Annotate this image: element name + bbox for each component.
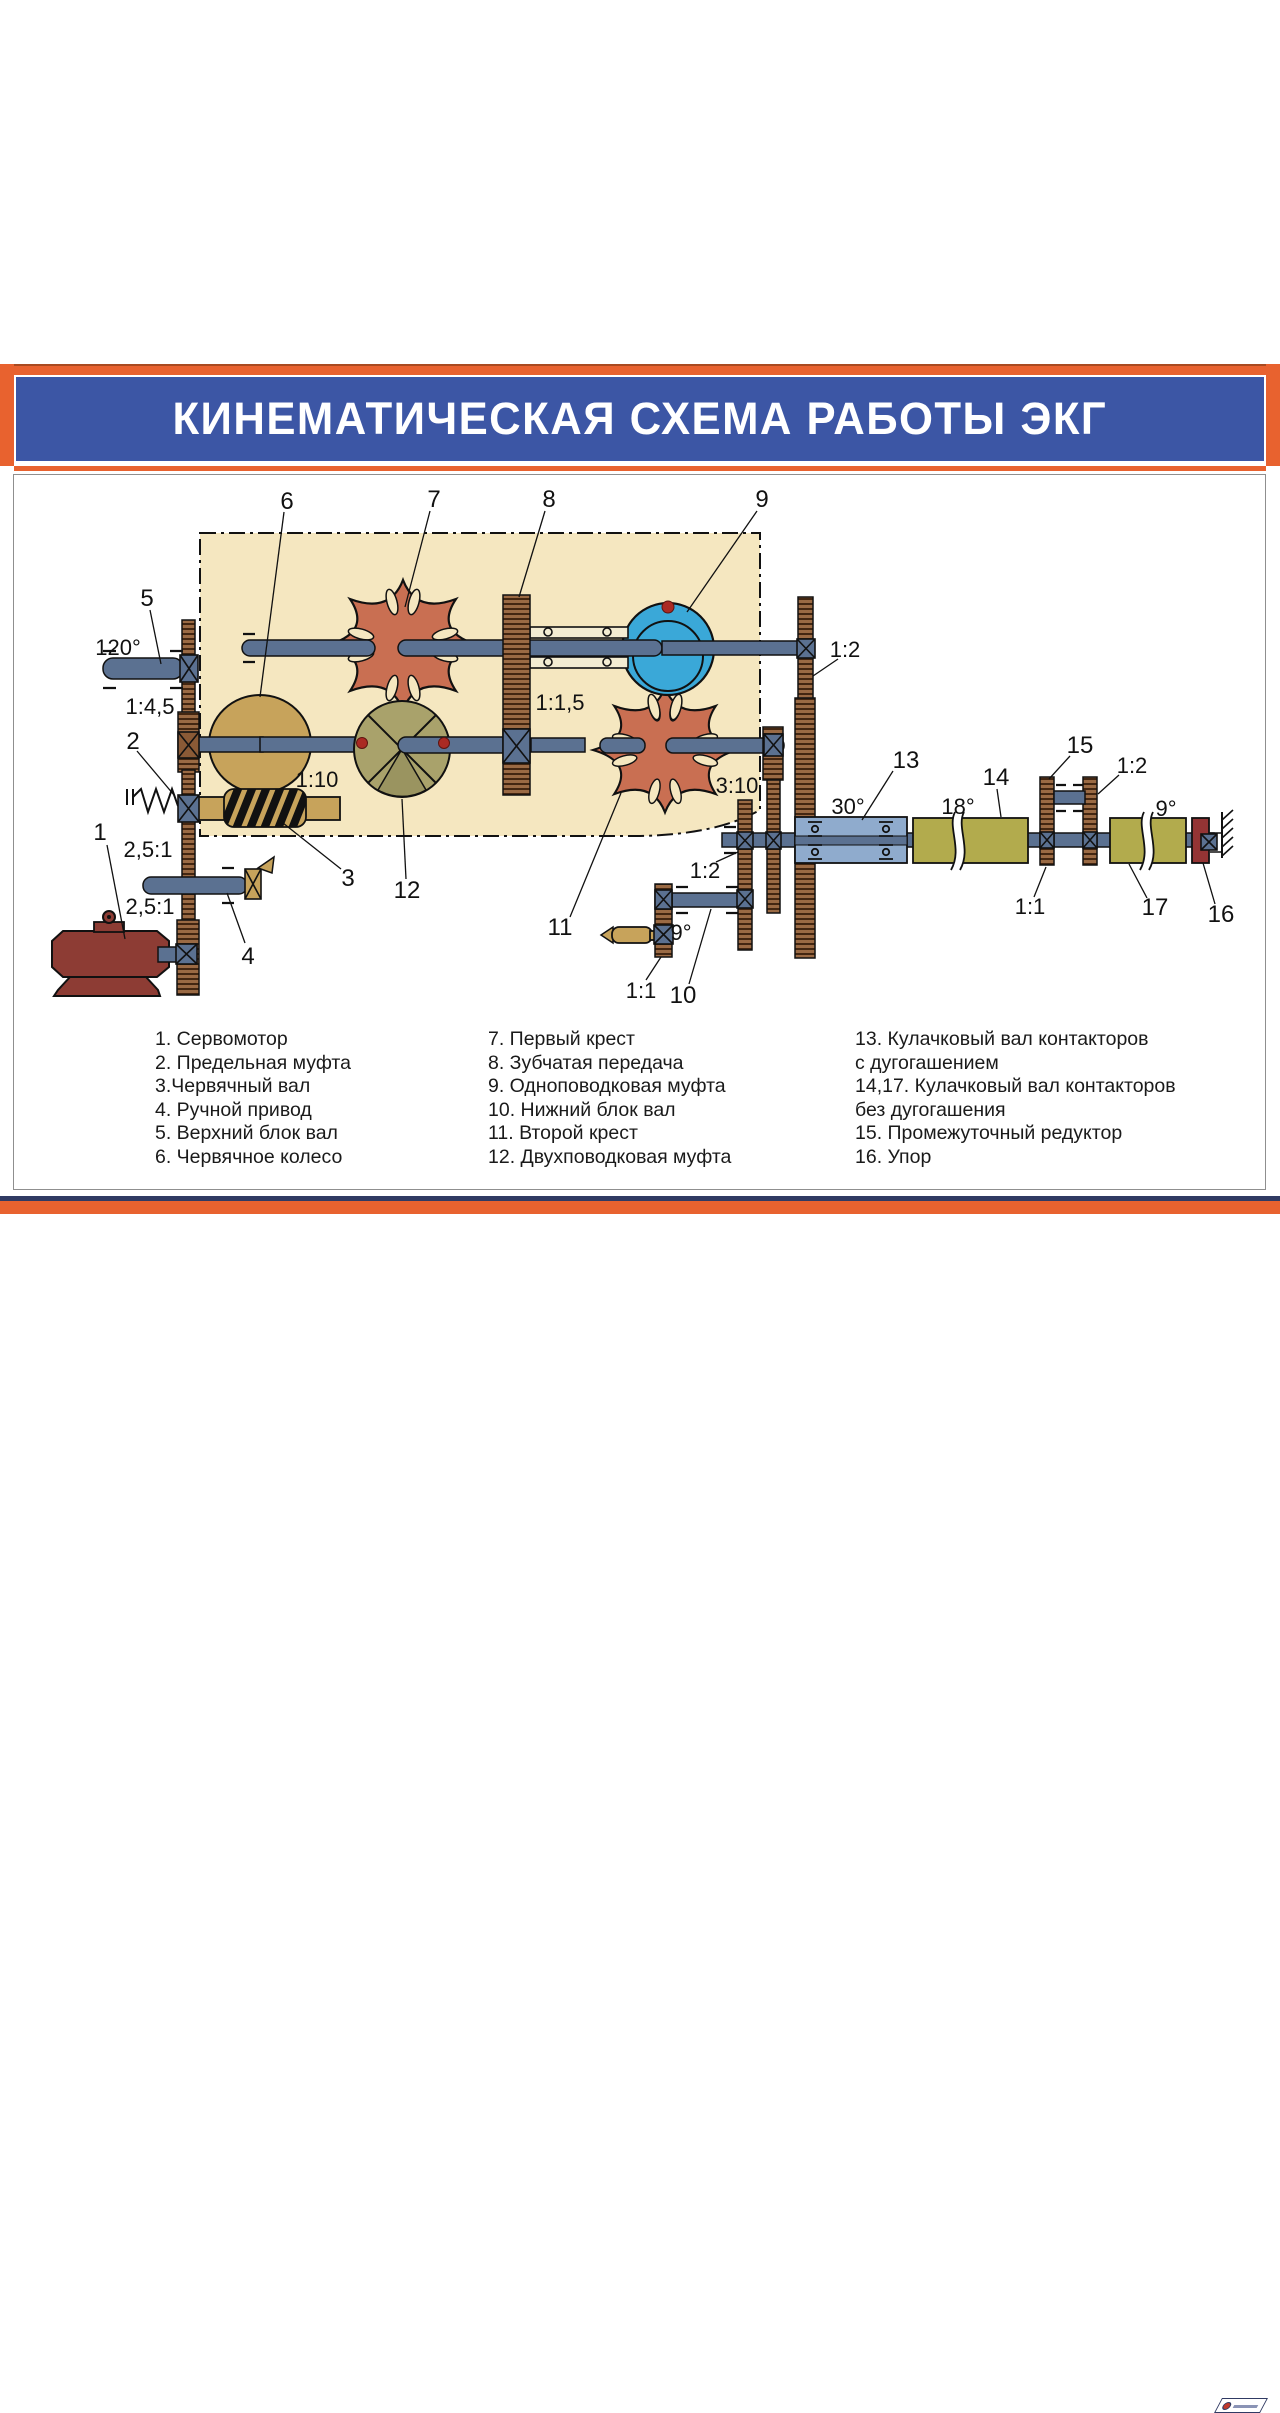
publisher-logo <box>1214 2398 1268 2413</box>
frame-left-band <box>0 364 14 466</box>
footer-orange-band <box>0 1201 1280 1214</box>
publisher-logo-icon <box>1221 2402 1233 2410</box>
banner-underline <box>14 466 1266 471</box>
frame-right-band <box>1266 364 1280 466</box>
diagram-panel <box>13 474 1266 1190</box>
publisher-logo-text-mark <box>1233 2405 1259 2408</box>
frame-top-band <box>0 364 1280 375</box>
title-banner: КИНЕМАТИЧЕСКАЯ СХЕМА РАБОТЫ ЭКГ <box>16 377 1264 461</box>
page-title: КИНЕМАТИЧЕСКАЯ СХЕМА РАБОТЫ ЭКГ <box>173 393 1108 445</box>
